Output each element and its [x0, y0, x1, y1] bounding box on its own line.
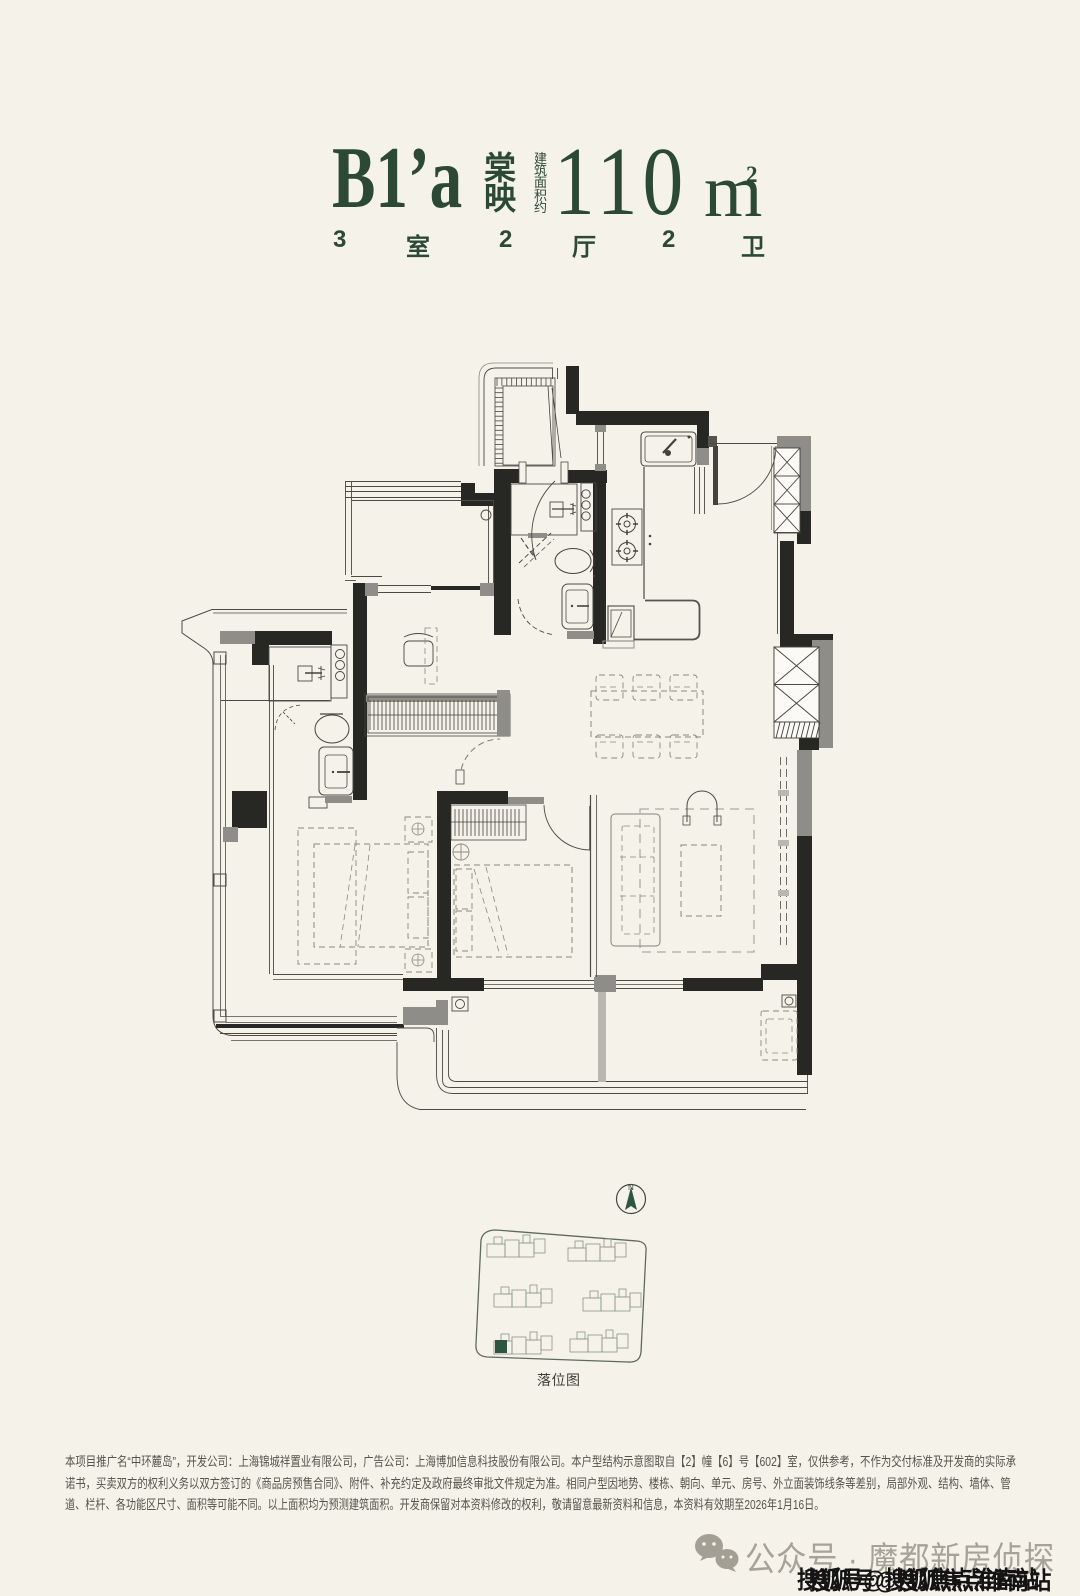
svg-text:N: N — [628, 1183, 634, 1192]
